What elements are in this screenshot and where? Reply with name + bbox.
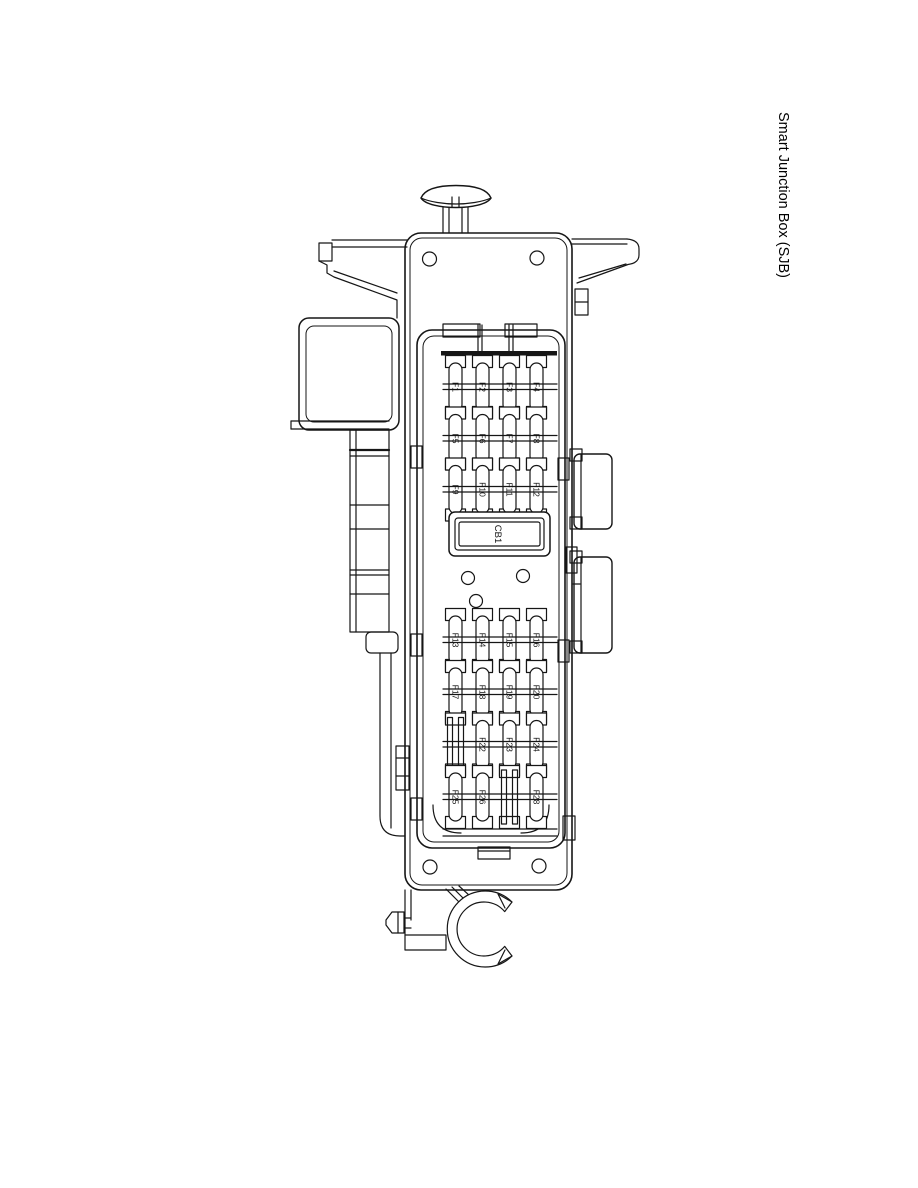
fuse-label: F15 <box>504 633 514 648</box>
sjb-diagram: F1F2F3F4F5F6F7F8F9F10F11F12F13F14F15F16F… <box>0 0 918 1188</box>
fuse-label: F3 <box>504 382 514 392</box>
fuse-label: F24 <box>531 737 541 752</box>
circuit-breaker-cb1: CB1 <box>449 512 550 556</box>
fuse-label: F23 <box>504 737 514 752</box>
bottom-retainer-clip <box>446 886 512 967</box>
fuse-row: F25F26F28 <box>443 766 557 829</box>
fuse-label: F2 <box>477 382 487 392</box>
fuse-label: F26 <box>477 790 487 805</box>
fuse-label: F10 <box>477 482 487 497</box>
left-connector-upper <box>291 318 399 430</box>
fuse-label: F14 <box>477 633 487 648</box>
right-mid-tab <box>566 547 580 584</box>
fuse-label: F20 <box>531 685 541 700</box>
fuse-label: F7 <box>504 434 514 444</box>
push-pin-fastener <box>386 890 446 950</box>
fuse-label: F8 <box>531 434 541 444</box>
fuse-label: F4 <box>531 382 541 392</box>
left-connector-lower <box>350 430 389 632</box>
fuse-label: F5 <box>450 434 460 444</box>
fuse-label: F16 <box>531 633 541 648</box>
left-mounting-bracket <box>319 240 407 318</box>
fuse-terminal <box>500 766 520 778</box>
fuse-label: F19 <box>504 685 514 700</box>
page-title-vertical: Smart Junction Box (SJB) <box>775 112 791 278</box>
fuse-label: F12 <box>531 482 541 497</box>
fuse-label: F18 <box>477 685 487 700</box>
fuse-terminal <box>446 713 466 725</box>
right-connector-bracket-2 <box>563 551 612 840</box>
fuse-label: F6 <box>477 434 487 444</box>
fuse-label: F13 <box>450 633 460 648</box>
right-flange <box>572 239 639 315</box>
fuse-label: F25 <box>450 790 460 805</box>
right-connector-bracket-1 <box>570 449 612 529</box>
fuse-label: F11 <box>504 482 514 496</box>
fuse-grid: F1F2F3F4F5F6F7F8F9F10F11F12F13F14F15F16F… <box>443 356 557 829</box>
mounting-knob <box>421 186 491 234</box>
fuse-label: F9 <box>450 485 460 495</box>
fuse-panel <box>411 324 569 859</box>
breaker-label: CB1 <box>492 525 503 543</box>
fuse-label: F1 <box>450 382 460 392</box>
manual-page: F1F2F3F4F5F6F7F8F9F10F11F12F13F14F15F16F… <box>0 0 918 1188</box>
fuse-terminal <box>500 817 520 829</box>
fuse-label: F22 <box>477 737 487 752</box>
fuse-label: F28 <box>531 790 541 805</box>
fuse-label: F17 <box>450 685 460 700</box>
left-arm <box>366 632 409 836</box>
